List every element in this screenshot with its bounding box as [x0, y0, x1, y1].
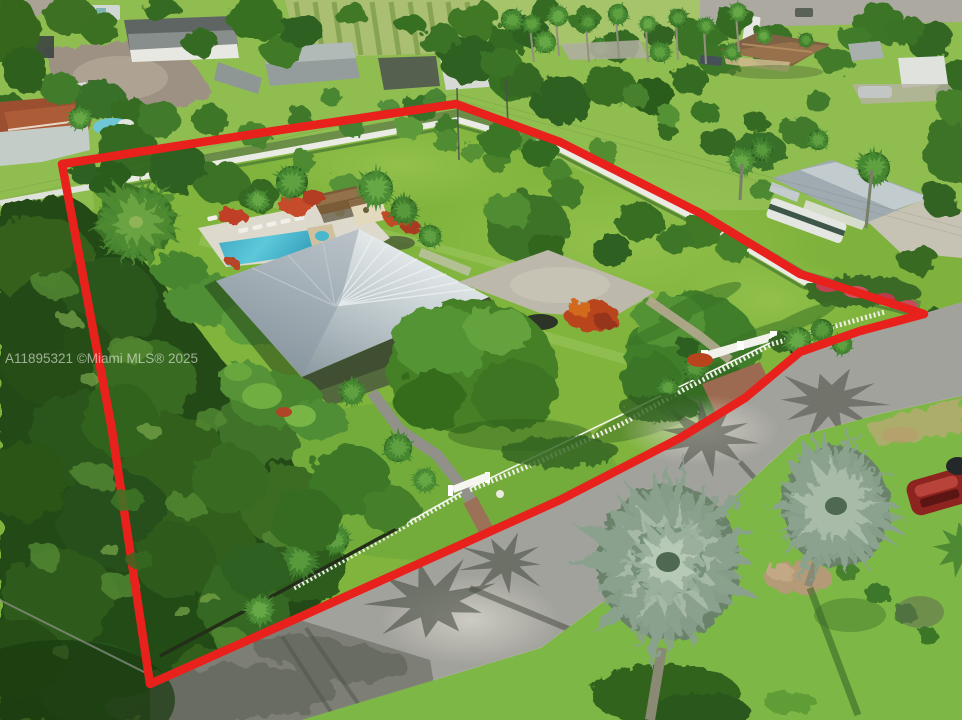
svg-text:A11895321 ©Miami MLS® 2025: A11895321 ©Miami MLS® 2025 — [5, 351, 198, 366]
